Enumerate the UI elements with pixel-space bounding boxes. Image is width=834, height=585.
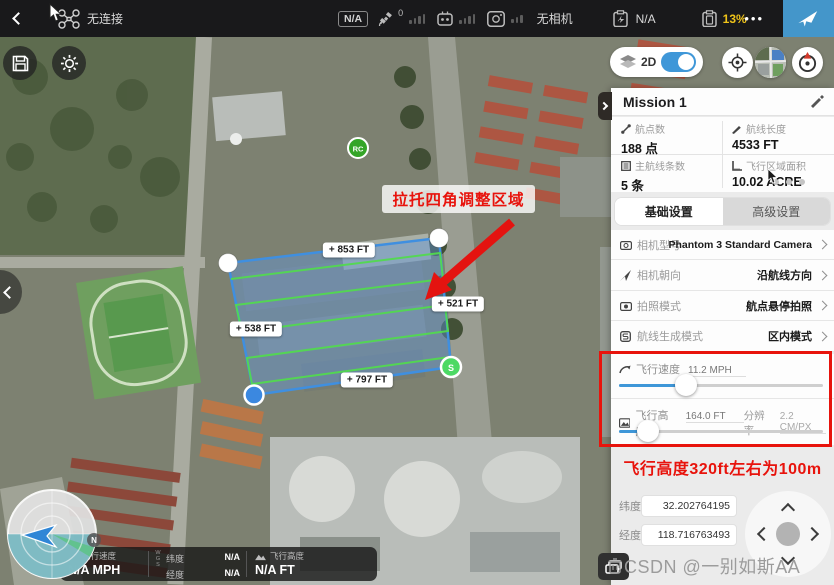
remote-controller-icon (437, 11, 453, 26)
save-icon (12, 55, 29, 72)
map-mode-pill: 2D (610, 47, 703, 77)
gps-mode-badge: N/A (338, 11, 368, 27)
satellite-icon (378, 11, 395, 27)
camera-icon (620, 240, 632, 250)
north-badge: N (87, 533, 101, 547)
top-bar: 无连接 N/A 0 无相机 N/A (0, 0, 834, 37)
chevron-right-icon (818, 270, 828, 280)
locate-icon (728, 53, 747, 72)
takeoff-button[interactable] (783, 0, 834, 37)
route-length-icon (732, 124, 742, 134)
layers-icon (620, 55, 636, 69)
tab-basic-settings[interactable]: 基础设置 (615, 198, 723, 225)
latitude-input[interactable] (641, 495, 737, 517)
altitude-slider-row: 飞行高度 164.0 FT 分辨率 2.2 CM/PX (611, 400, 834, 445)
mission-settings-button[interactable] (52, 46, 86, 80)
nudge-dpad (745, 491, 831, 577)
altitude-icon (255, 552, 266, 561)
back-button[interactable] (0, 0, 36, 37)
svg-text:N: N (91, 536, 97, 545)
altitude-slider-track[interactable] (619, 430, 823, 433)
mission-title: Mission 1 (623, 94, 687, 110)
drone-icon (58, 9, 80, 29)
main-lines-icon (621, 161, 631, 171)
layers-stack-icon (605, 560, 622, 574)
camera-status-text: 无相机 (537, 10, 573, 27)
speed-value: 11.2 MPH (688, 365, 746, 377)
route-mode-icon (620, 331, 631, 342)
satellite-count: 0 (398, 8, 403, 18)
tab-advanced-settings[interactable]: 高级设置 (723, 198, 831, 225)
mission-panel: Mission 1 航点数 188 点 航线长度 4533 FT 主航线条数 (611, 88, 834, 585)
speed-slider-track[interactable] (619, 384, 823, 387)
panel-collapse-tab[interactable] (598, 92, 612, 120)
edge-distance-left: + 538 FT (230, 322, 282, 337)
rc-signal-bars (459, 14, 475, 24)
chevron-left-icon (12, 12, 25, 25)
stat-waypoints: 航点数 188 点 (611, 117, 722, 154)
altitude-icon (619, 418, 630, 428)
compass-reset-button[interactable] (792, 47, 823, 78)
telemetry-altitude: 飞行高度 N/A FT (247, 547, 339, 581)
camera-status-icon (487, 11, 505, 27)
chevron-right-icon (818, 331, 828, 341)
chevron-right-icon (600, 102, 608, 110)
locate-me-button[interactable] (722, 47, 753, 78)
device-battery-icon (702, 10, 717, 27)
longitude-input[interactable] (641, 524, 737, 546)
svg-text:S: S (448, 363, 454, 373)
start-marker[interactable]: S (441, 357, 461, 377)
edge-distance-top: + 853 FT (323, 243, 375, 258)
map-2d-label: 2D (641, 55, 656, 69)
stats-page-dot-2[interactable] (786, 179, 792, 185)
mission-header: Mission 1 (611, 88, 834, 116)
chevron-right-icon (818, 240, 828, 250)
setting-camera-model[interactable]: 相机型号 Phantom 3 Standard Camera (611, 230, 834, 260)
altitude-slider-thumb[interactable] (637, 420, 659, 442)
telemetry-coords: 纬度N/A 经度N/A (164, 547, 246, 581)
telemetry-bar: 飞行速度 N/A MPH WGS 纬度N/A 经度N/A 飞行高度 N/A FT (60, 547, 377, 581)
altitude-note: 飞行高度320ft左右为100m (611, 450, 834, 483)
area-ruler-icon (732, 161, 742, 171)
stat-route-length: 航线长度 4533 FT (722, 117, 833, 154)
attitude-compass: N (6, 488, 106, 584)
map-thumbnail (755, 47, 786, 78)
map-type-button[interactable] (755, 47, 786, 78)
svg-text:RC: RC (353, 145, 364, 154)
photo-mode-icon (620, 301, 632, 311)
map-gallery-button[interactable] (598, 553, 629, 580)
stat-area: 飞行区域面积 10.02 ACRE (722, 154, 833, 191)
stat-main-lines: 主航线条数 5 条 (611, 154, 722, 191)
flight-sliders: 飞行速度 11.2 MPH 飞行高度 164.0 FT 分辨率 2.2 CM/P… (611, 354, 834, 445)
edge-distance-bottom: + 797 FT (341, 373, 393, 388)
edge-distance-right: + 521 FT (432, 297, 484, 312)
altitude-value: 164.0 FT (686, 411, 744, 423)
chevron-right-icon (818, 301, 828, 311)
settings-tabs: 基础设置 高级设置 (615, 198, 830, 225)
corner-handle-bottom-left[interactable] (245, 386, 264, 405)
mission-stats: 航点数 188 点 航线长度 4533 FT 主航线条数 5 条 飞行区域面积 … (611, 117, 834, 192)
camera-signal-bars (511, 15, 523, 23)
corner-handle-top-right[interactable] (430, 229, 449, 248)
compass-icon (797, 52, 818, 73)
gps-signal-bars (409, 14, 425, 24)
aircraft-battery-value: N/A (636, 12, 656, 26)
stats-page-dot-1[interactable] (773, 179, 779, 185)
connection-status: 无连接 (58, 9, 123, 29)
speed-slider-thumb[interactable] (675, 374, 697, 396)
corner-handle-top-left[interactable] (219, 254, 238, 273)
setting-photo-mode[interactable]: 拍照模式 航点悬停拍照 (611, 291, 834, 321)
rc-location-marker: RC (348, 138, 368, 158)
chevron-left-icon (3, 286, 16, 299)
airplane-icon (797, 9, 821, 29)
map-2d-toggle[interactable] (661, 52, 696, 72)
edit-mission-icon[interactable] (811, 95, 824, 108)
region-hint-label: 拉托四角调整区域 (382, 185, 535, 213)
speed-icon (619, 364, 631, 375)
save-mission-button[interactable] (3, 46, 37, 80)
heading-arrow-icon (620, 270, 631, 281)
setting-route-mode[interactable]: 航线生成模式 区内模式 (611, 322, 834, 352)
datum-label: WGS (155, 550, 161, 581)
stats-page-dot-3[interactable] (799, 179, 805, 185)
settings-list: 相机型号 Phantom 3 Standard Camera 相机朝向 沿航线方… (611, 230, 834, 352)
more-menu-button[interactable]: ••• (730, 11, 778, 26)
aircraft-battery-icon (613, 10, 628, 27)
speed-slider-row: 飞行速度 11.2 MPH (611, 354, 834, 399)
setting-camera-heading[interactable]: 相机朝向 沿航线方向 (611, 261, 834, 291)
waypoint-icon (621, 124, 631, 134)
nudge-center-button[interactable] (776, 522, 800, 546)
gear-icon (60, 54, 79, 73)
